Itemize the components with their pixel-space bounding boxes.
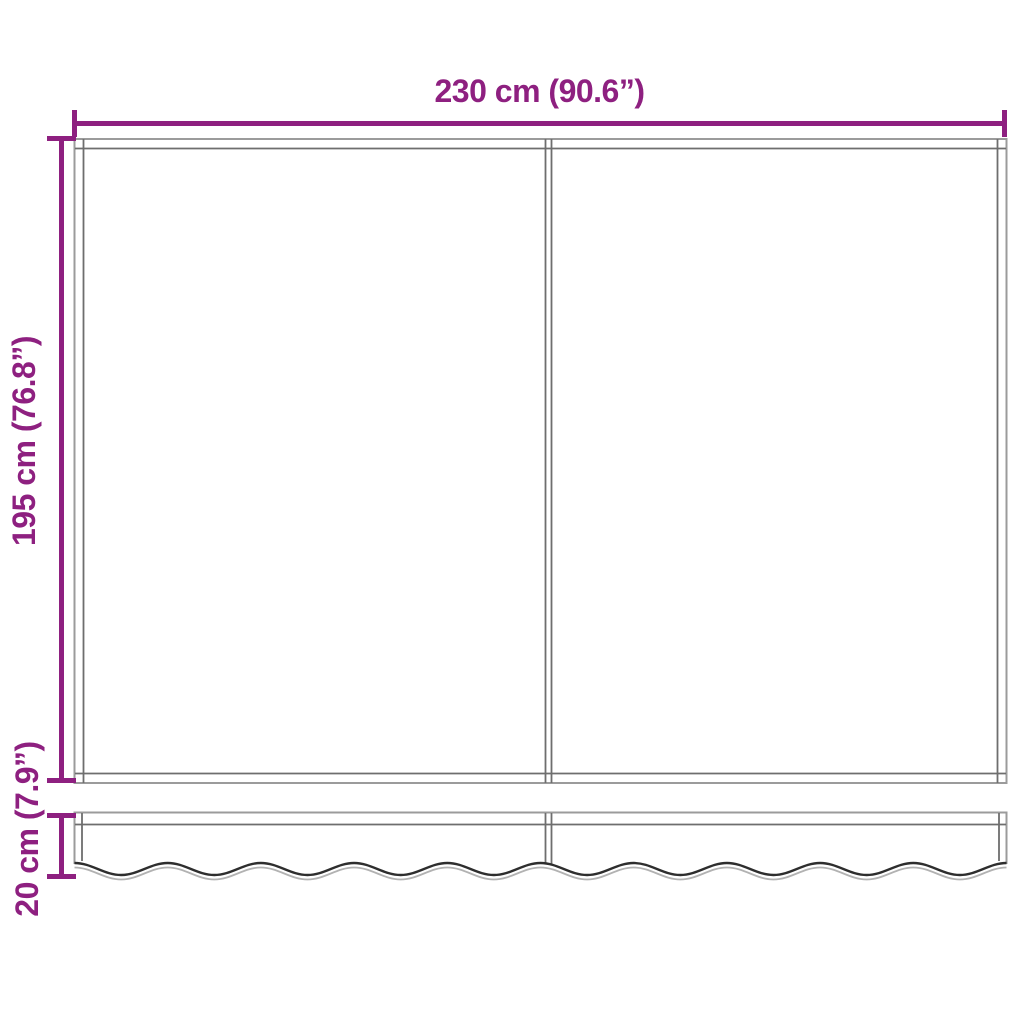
width-dimension-label: 230 cm (90.6”) [74, 74, 1005, 108]
main-panel-outline [75, 139, 1007, 783]
valance [75, 812, 1007, 880]
width-dimension [74, 110, 1006, 137]
height-dimension-label: 195 cm (76.8”) [7, 331, 41, 551]
valance-scallop-edge-shadow [75, 868, 1007, 880]
dimension-diagram: 230 cm (90.6”) 195 cm (76.8”) 20 cm (7.9… [0, 0, 1024, 1024]
awning-fabric-drawing [0, 0, 1024, 1024]
valance-scallop-edge [75, 863, 1007, 875]
valance-height-dimension-label: 20 cm (7.9”) [10, 739, 44, 919]
main-panel [75, 139, 1007, 783]
valance-height-dimension [47, 816, 76, 878]
height-dimension [47, 139, 76, 782]
